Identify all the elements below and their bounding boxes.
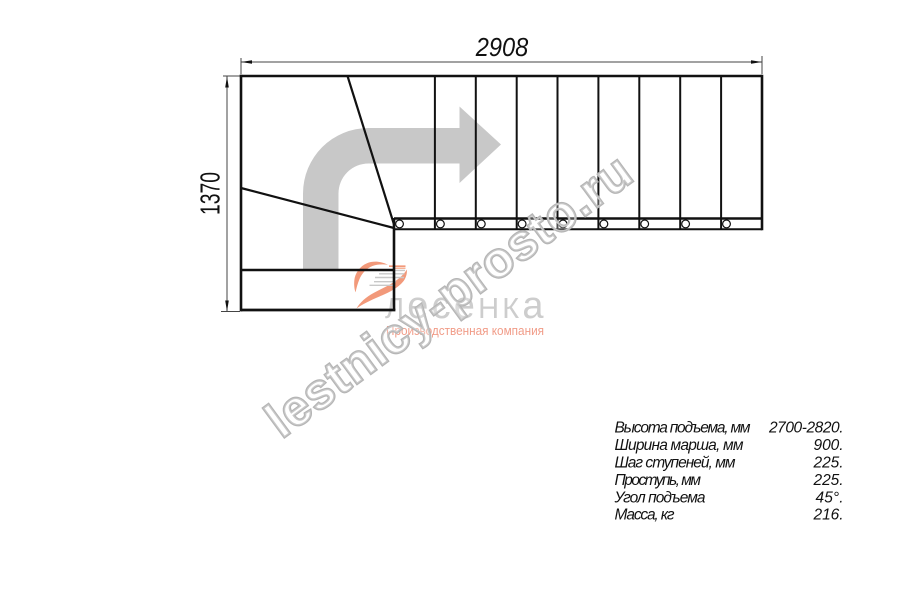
svg-text:Шаг ступеней, мм: Шаг ступеней, мм	[615, 455, 736, 472]
svg-text:216.: 216.	[813, 507, 844, 524]
svg-text:2700-2820.: 2700-2820.	[768, 420, 844, 437]
svg-text:900.: 900.	[814, 437, 844, 454]
svg-text:Ширина марша, мм: Ширина марша, мм	[615, 437, 744, 454]
svg-text:Угол подъема: Угол подъема	[614, 489, 706, 506]
svg-text:2908: 2908	[475, 32, 529, 62]
svg-text:Высота подъема, мм: Высота подъема, мм	[615, 420, 751, 437]
svg-text:225.: 225.	[813, 472, 844, 489]
svg-text:Масса, кг: Масса, кг	[615, 507, 675, 524]
svg-text:Проступь, мм: Проступь, мм	[615, 472, 702, 489]
svg-text:1370: 1370	[195, 172, 226, 215]
svg-text:45°.: 45°.	[816, 489, 844, 506]
svg-text:225.: 225.	[813, 455, 844, 472]
